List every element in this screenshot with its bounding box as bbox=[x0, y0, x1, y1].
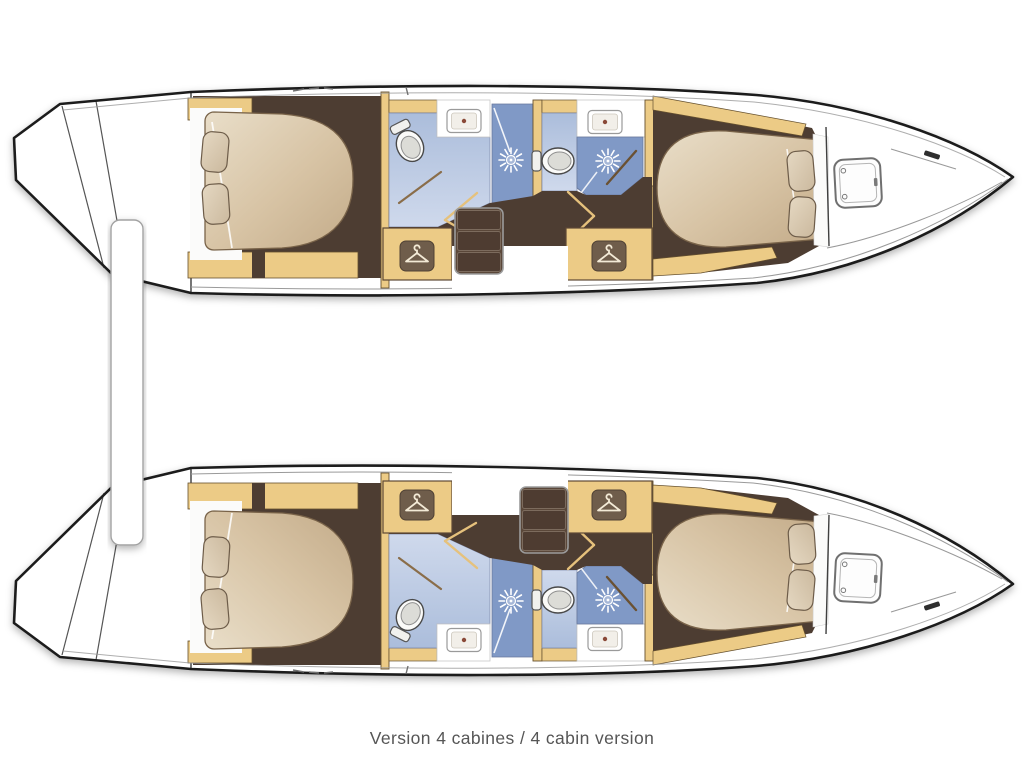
hanger-icon bbox=[400, 490, 434, 520]
companionway-steps bbox=[520, 487, 568, 553]
floor-plan: Version 4 cabines / 4 cabin version bbox=[0, 0, 1024, 768]
companionway-steps bbox=[455, 208, 503, 274]
aft-crossbeam bbox=[111, 220, 143, 545]
plan-caption: Version 4 cabines / 4 cabin version bbox=[0, 728, 1024, 749]
floor-plan-drawing bbox=[0, 0, 1024, 768]
hanger-icon bbox=[592, 490, 626, 520]
hanger-icon bbox=[400, 241, 434, 271]
hanger-icon bbox=[592, 241, 626, 271]
